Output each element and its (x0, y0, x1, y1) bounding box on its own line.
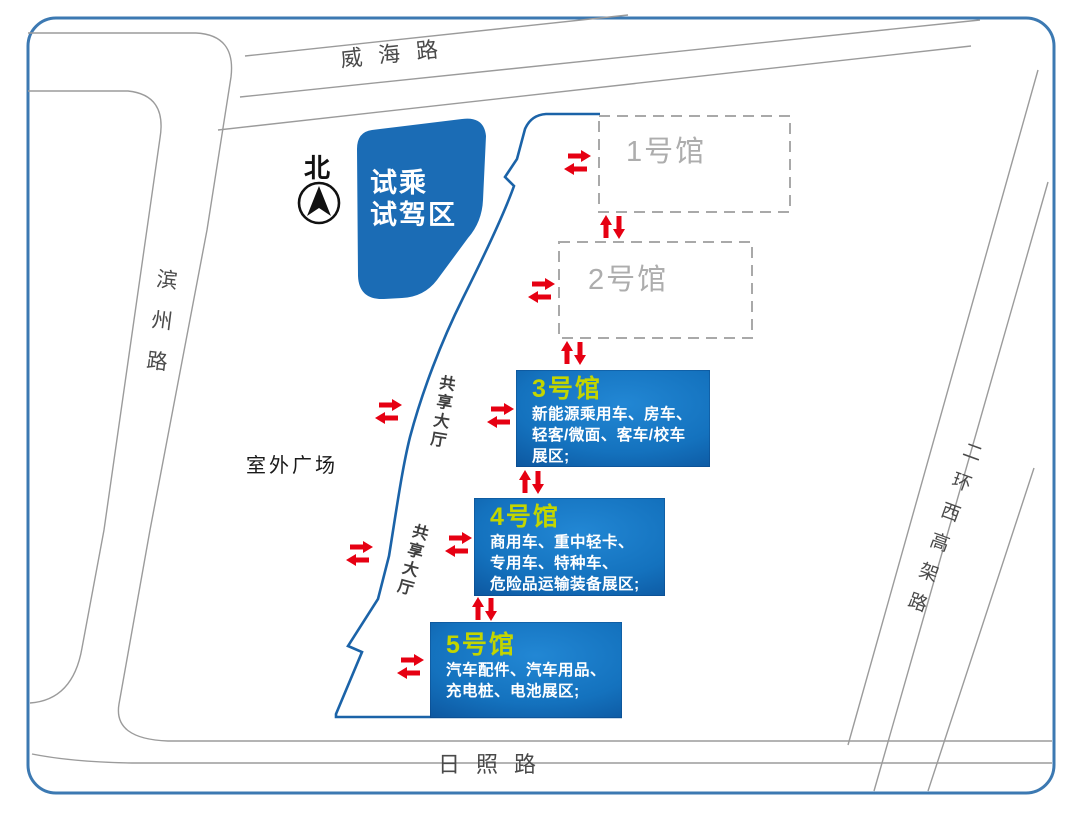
test-drive-line1: 试乘 (370, 167, 457, 199)
hall-5-desc-line1: 汽车配件、汽车用品、 (446, 660, 622, 681)
outdoor-plaza-label: 室外广场 (246, 449, 338, 478)
hall-5-desc-line2: 充电桩、电池展区; (446, 681, 622, 702)
road-line-binzhou-west (28, 91, 161, 703)
entrance-arrows-shared-hall-lower (346, 541, 373, 566)
hall-3-box: 3号馆 新能源乘用车、房车、 轻客/微面、客车/校车 展区; (516, 370, 710, 467)
entrance-arrows-hall3 (487, 403, 514, 428)
hall-5-box: 5号馆 汽车配件、汽车用品、 充电桩、电池展区; (430, 622, 622, 718)
entrance-arrows-hall2 (528, 278, 555, 303)
passage-arrows-hall3-hall4 (519, 470, 544, 494)
entrance-arrows-shared-hall-upper (375, 399, 402, 424)
hall-4-title: 4号馆 (490, 503, 665, 532)
hall-3-title: 3号馆 (532, 375, 710, 404)
hall-4-desc-line2: 专用车、特种车、 (490, 553, 665, 574)
road-line-erhuan-1 (848, 70, 1038, 745)
passage-arrows-hall1-hall2 (600, 215, 625, 239)
hall-4-desc-line3: 危险品运输装备展区; (490, 574, 665, 595)
north-label: 北 (304, 148, 330, 185)
test-drive-line2: 试驾区 (370, 199, 457, 231)
hall-5-title: 5号馆 (446, 631, 622, 660)
hall-3-desc-line2: 轻客/微面、客车/校车 (532, 425, 710, 446)
entrance-arrows-hall5 (397, 654, 424, 679)
passage-arrows-hall4-hall5 (472, 597, 497, 621)
hall-2-label: 2号馆 (588, 256, 668, 298)
test-drive-area-label: 试乘 试驾区 (370, 167, 457, 231)
entrance-arrows-hall1 (564, 150, 591, 175)
hall-4-box: 4号馆 商用车、重中轻卡、 专用车、特种车、 危险品运输装备展区; (474, 498, 665, 596)
passage-arrows-hall2-hall3 (561, 341, 586, 365)
hall-1-label: 1号馆 (626, 128, 706, 170)
hall-3-desc-line3: 展区; (532, 446, 710, 467)
entrance-arrows-hall4 (445, 532, 472, 557)
north-compass-icon (299, 183, 339, 223)
hall-3-desc-line1: 新能源乘用车、房车、 (532, 404, 710, 425)
venue-map: 威海路 滨州路 日照路 二环西高架路 北 试乘 试驾区 室外广场 共享大厅 共享… (0, 0, 1080, 815)
road-label-rizhao: 日照路 (438, 747, 552, 779)
hall-4-desc-line1: 商用车、重中轻卡、 (490, 532, 665, 553)
